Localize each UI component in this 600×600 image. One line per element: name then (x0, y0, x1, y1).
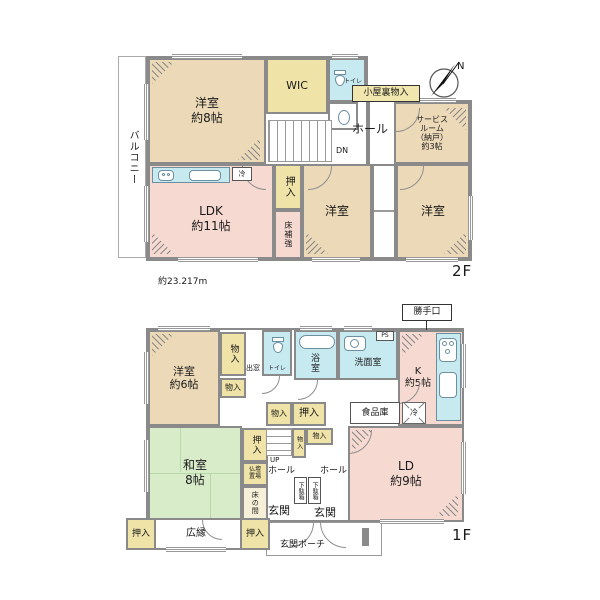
room-western-right-label: 洋室 (421, 204, 445, 219)
ld-label: LD 約9帖 (390, 459, 422, 488)
closet-divider (374, 210, 394, 212)
bathtub-icon (299, 335, 335, 349)
room-ldk-label: LDK 約11帖 (191, 190, 230, 233)
attic-storage-label: 小屋裏物入 (363, 88, 408, 99)
room-service-label: サービス ルーム （納戸） 約3帖 (416, 115, 448, 152)
floorplan-canvas: { "meta": { "floor2_label": "2F", "floor… (0, 0, 600, 600)
baywindow-label: 出窓 (246, 364, 260, 373)
pipe-space: PS (376, 331, 394, 341)
stove-burner-icon (167, 173, 170, 176)
window (144, 440, 149, 492)
stairs-dn-label: DN (336, 146, 348, 156)
room-western-8: 洋室 約8帖 (148, 58, 266, 164)
washitsu-label: 和室 8帖 (183, 458, 207, 487)
fridge-1f: 冷 (402, 402, 426, 424)
closet-oshiire-b: 押入 (242, 428, 268, 462)
tokonoma-label: 床の間 (251, 491, 260, 515)
fridge-2f-label: 冷 (239, 170, 246, 179)
oshiire-a-label: 押入 (299, 408, 319, 420)
stairs-up (266, 428, 292, 456)
backdoor-pointer (426, 321, 427, 330)
window (461, 442, 466, 494)
butsudan-label: 仏壇 置場 (249, 467, 261, 480)
window (406, 257, 458, 262)
monoire-d-label: 物入 (295, 436, 302, 450)
fridge-1f-label: 冷 (409, 408, 419, 418)
washroom-label: 洗面室 (354, 342, 381, 369)
window (144, 84, 149, 140)
toilet-1f-label: トイレ (268, 365, 286, 372)
floor-reinforce-label: 床補強 (283, 221, 293, 248)
hall-1f-right-label: ホール (320, 466, 347, 477)
oshiire-d-label: 押入 (246, 529, 264, 540)
balcony-label: バルコニー (126, 130, 138, 185)
sink-icon (189, 170, 221, 181)
monoire-c-label: 物入 (271, 409, 287, 419)
closet-oshiire-d: 押入 (240, 518, 270, 550)
closet-oshiire-2f: 押入 (274, 164, 302, 210)
bath-label: 浴室 (308, 353, 319, 373)
window (332, 54, 358, 59)
stove-icon (158, 170, 174, 181)
closet-oshiire-a: 押入 (292, 402, 326, 426)
dimension-label: 約23.217m (158, 277, 207, 288)
balcony: バルコニー (118, 56, 146, 258)
closet-monoire-d: 物入 (292, 428, 306, 458)
genkan-right-label: 玄関 (314, 506, 336, 519)
window (461, 344, 466, 388)
compass-icon: N (424, 56, 470, 102)
kitchen-counter-1f (436, 333, 461, 421)
window (468, 196, 473, 240)
window (158, 326, 210, 331)
closet-monoire-b: 物入 (220, 378, 246, 398)
monoire-b-label: 物入 (225, 383, 241, 393)
pantry-box: 食品庫 (350, 402, 400, 424)
shoebox-a: 下駄箱 (294, 477, 307, 504)
toilet-1f: トイレ (262, 330, 292, 376)
monoire-e-label: 物入 (313, 432, 327, 441)
stove-burner-icon (445, 349, 450, 354)
stove-burner-icon (442, 341, 447, 346)
fridge-2f: 冷 (232, 167, 252, 181)
window (344, 326, 372, 331)
ps-label: PS (381, 332, 388, 339)
kitchen-counter-2f (152, 167, 230, 183)
genkan-left-label: 玄関 (268, 504, 290, 517)
stove-burner-icon (162, 173, 165, 176)
floor2-label: 2F (452, 262, 472, 280)
closet-monoire-c: 物入 (266, 402, 292, 426)
attic-storage-tag: 小屋裏物入 (352, 85, 420, 102)
window (144, 186, 149, 242)
pantry-label: 食品庫 (361, 408, 388, 419)
window (380, 519, 444, 524)
butsudan-space: 仏壇 置場 (242, 462, 268, 486)
room-western-8-label: 洋室 約8帖 (191, 96, 223, 125)
floor1-label: 1F (452, 526, 472, 544)
shoebox-b: 下駄箱 (308, 477, 321, 504)
backdoor-tag: 勝手口 (402, 304, 452, 321)
porch-pillar (362, 528, 369, 546)
getabako-a-label: 下駄箱 (297, 482, 304, 500)
stairs-up-label: UP (270, 456, 279, 465)
oshiire-b-label: 押入 (250, 435, 261, 455)
closet-oshiire-c: 押入 (126, 518, 156, 550)
room-bath: 浴室 (294, 330, 338, 380)
monoire-a-label: 物入 (228, 344, 239, 364)
wic-label: WIC (286, 79, 308, 92)
closet-monoire-e: 物入 (306, 428, 333, 445)
room-western-6-label: 洋室 約6帖 (170, 365, 199, 392)
stairs-down (268, 120, 332, 162)
floor-reinforce: 床補強 (274, 210, 302, 259)
room-wic: WIC (266, 58, 328, 114)
window (166, 547, 226, 552)
closet-monoire-a: 物入 (220, 332, 246, 376)
backdoor-label: 勝手口 (413, 307, 440, 318)
stove-burner-icon (449, 341, 454, 346)
room-western-center-label: 洋室 (325, 204, 349, 219)
toilet-icon (272, 337, 284, 353)
window (312, 257, 360, 262)
compass-north-label: N (457, 61, 464, 72)
hall-1f-left-label: ホール (268, 466, 295, 477)
room-washitsu: 和室 8帖 (148, 426, 242, 520)
hall-2f-label: ホール (352, 122, 388, 137)
oshiire-c-label: 押入 (132, 529, 150, 540)
tokonoma: 床の間 (242, 486, 268, 520)
sink-icon (439, 372, 457, 398)
washbasin-icon (338, 110, 350, 125)
window (172, 54, 242, 59)
window (300, 326, 332, 331)
window (144, 352, 149, 404)
oshiire-2f-label: 押入 (282, 176, 294, 198)
engawa-label: 広縁 (186, 528, 206, 540)
tatami-line (180, 428, 181, 472)
room-washroom: 洗面室 PS (338, 330, 398, 380)
porch-label: 玄関ポーチ (280, 540, 325, 551)
tatami-line (210, 474, 211, 518)
getabako-b-label: 下駄箱 (311, 482, 318, 500)
window (178, 257, 258, 262)
